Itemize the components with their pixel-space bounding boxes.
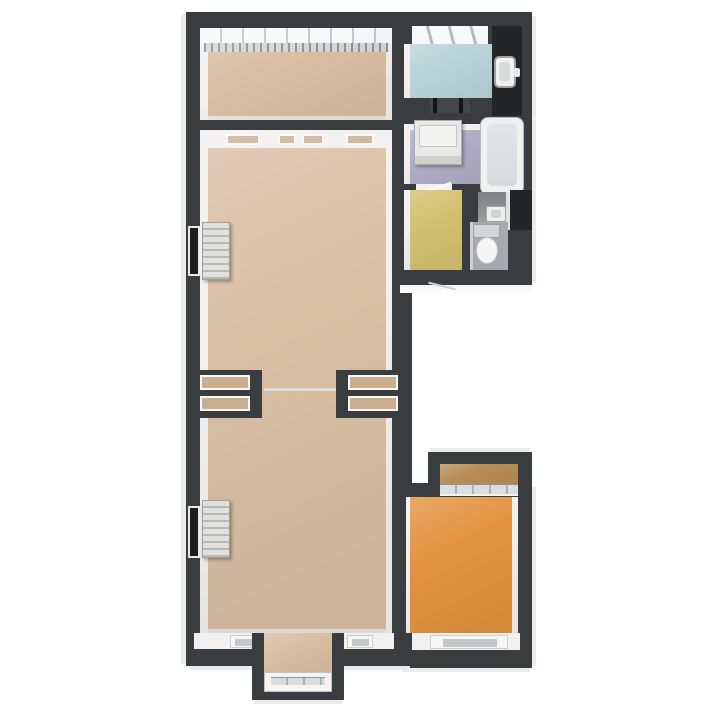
door-post-icon bbox=[433, 98, 437, 113]
partition-opening-icon bbox=[348, 396, 398, 411]
bay-outer-face-bottom bbox=[254, 700, 342, 704]
outer-face-right-orange bbox=[532, 487, 536, 666]
partition-opening-icon bbox=[200, 375, 250, 390]
partition-stub-left bbox=[186, 370, 262, 418]
bay-wall-bottom bbox=[252, 692, 344, 700]
outer-face-bottom-orange bbox=[402, 668, 530, 672]
bay-wall-left bbox=[252, 633, 264, 692]
washing-machine-icon bbox=[414, 120, 462, 165]
bay-window bbox=[252, 633, 344, 700]
window-sill-icon bbox=[347, 635, 373, 648]
radiator-strip-icon bbox=[204, 43, 388, 52]
transom-opening-icon bbox=[346, 134, 374, 145]
outer-face-right-mid bbox=[532, 119, 536, 283]
bay-window-frame bbox=[264, 672, 332, 692]
outer-face-right-top bbox=[532, 16, 536, 118]
partition-stub-right bbox=[336, 370, 412, 418]
washroom-door-opening bbox=[430, 98, 470, 113]
duct-shaft bbox=[510, 190, 532, 230]
toilet-bowl-icon bbox=[476, 237, 498, 264]
balcony-window-band-icon bbox=[440, 484, 518, 496]
orange-bottom-inner-face bbox=[412, 633, 520, 650]
outer-face-midwing-south bbox=[400, 285, 532, 293]
window-sill-icon bbox=[430, 635, 508, 649]
door-post-icon bbox=[459, 98, 463, 113]
small-washbasin-icon bbox=[486, 206, 506, 222]
transom-opening-icon bbox=[226, 134, 260, 145]
window-band-icon bbox=[200, 28, 392, 43]
toilet-tank-icon bbox=[473, 224, 500, 238]
outer-face-left bbox=[181, 14, 186, 664]
skylight-window-icon bbox=[412, 26, 488, 44]
radiator-icon bbox=[202, 500, 230, 558]
yellow-room-floor bbox=[404, 190, 462, 270]
floorplan-3d bbox=[0, 0, 720, 720]
transom-opening-icon bbox=[278, 134, 296, 145]
partition-rail bbox=[264, 388, 336, 391]
washroom-floor bbox=[404, 44, 500, 98]
balcony-floor bbox=[440, 464, 518, 484]
window-icon bbox=[188, 226, 200, 276]
outer-face-balcony-top bbox=[430, 448, 530, 452]
partition-opening-icon bbox=[200, 396, 250, 411]
bay-wall-right bbox=[332, 633, 344, 692]
bay-floor bbox=[264, 633, 332, 672]
transom-opening-icon bbox=[302, 134, 324, 145]
bathtub-icon bbox=[480, 117, 524, 195]
bay-window-glass-icon bbox=[271, 677, 325, 687]
washbasin-icon bbox=[494, 56, 516, 88]
top-left-room-floor bbox=[200, 28, 392, 120]
partition-opening-icon bbox=[348, 375, 398, 390]
window-icon bbox=[188, 506, 200, 558]
orange-room-floor bbox=[406, 497, 518, 633]
radiator-icon bbox=[202, 222, 230, 280]
